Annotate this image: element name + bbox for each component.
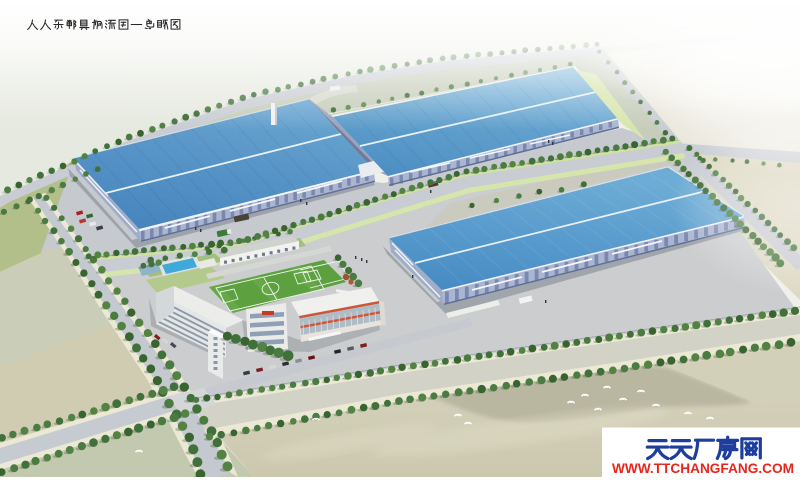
svg-text:WWW.TTCHANGFANG.COM: WWW.TTCHANGFANG.COM <box>612 460 794 476</box>
